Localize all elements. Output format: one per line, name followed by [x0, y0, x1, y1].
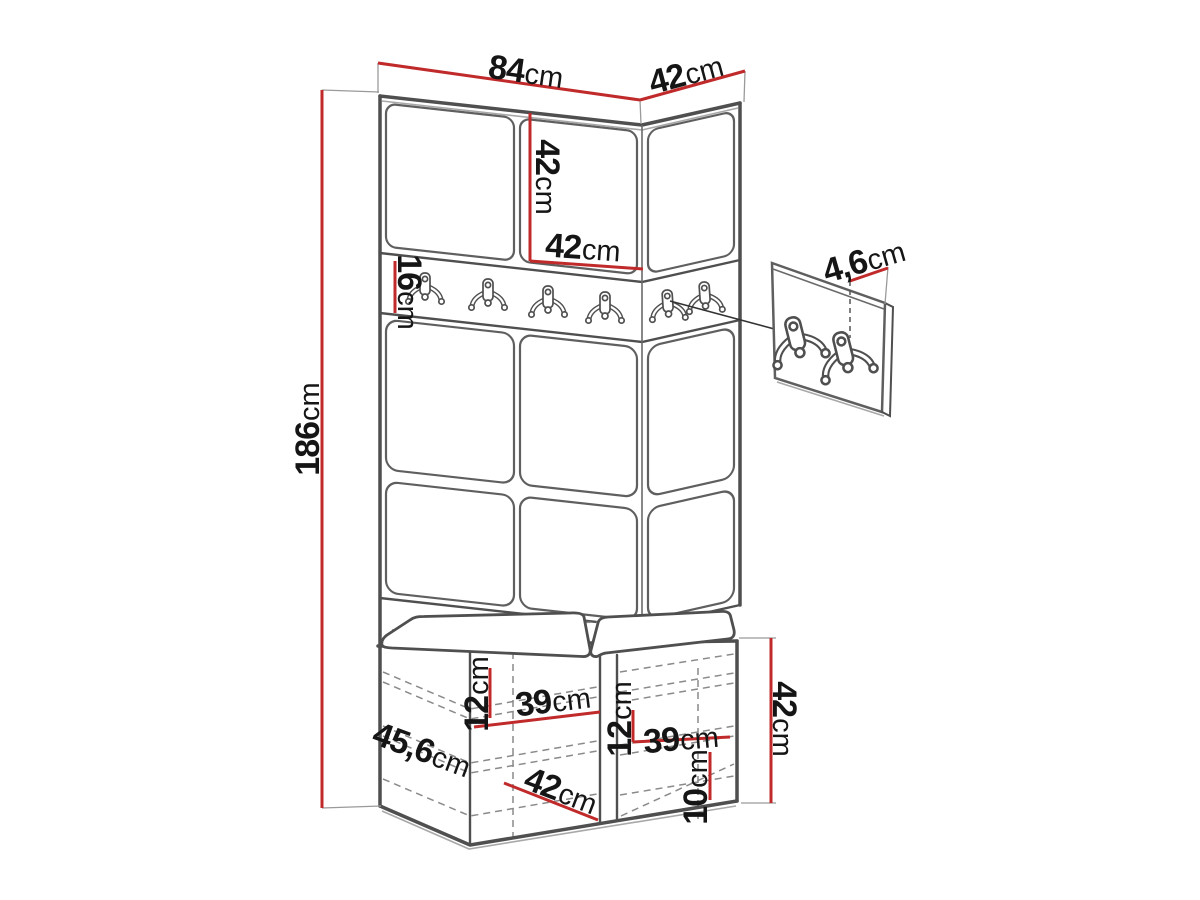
- upper-door-left: [386, 104, 514, 261]
- dim-label-upper-cabinet-width: 42cm: [544, 228, 622, 267]
- dim-label-bottom-shelf-gap: 10cm: [679, 749, 713, 825]
- seat-cushion-right: [591, 611, 734, 656]
- furniture-drawing: [0, 0, 1200, 900]
- dim-label-total-height: 186cm: [291, 382, 325, 475]
- coat-hook-icon: [648, 289, 688, 323]
- dim-label-hook-rail-height: 16cm: [392, 254, 426, 330]
- coat-hook-icon: [469, 279, 507, 310]
- dimension-diagram: 84cm 42cm 42cm 42cm 16cm 186cm 4,6cm 45,…: [0, 0, 1200, 900]
- front-face-panels: [386, 104, 637, 621]
- wall-panel-1: [386, 320, 514, 484]
- coat-hook-icon: [529, 286, 567, 317]
- dim-label-shelf-gap-right: 12cm: [603, 681, 637, 757]
- dim-label-upper-cabinet-height: 42cm: [530, 139, 564, 215]
- upper-door-side: [648, 111, 734, 273]
- wall-panel-3: [386, 482, 514, 607]
- wall-panel-2: [520, 334, 637, 497]
- wall-panel-4: [520, 496, 637, 620]
- dim-label-shelf-gap-left: 12cm: [460, 656, 494, 732]
- wall-panel-side-2: [648, 489, 734, 619]
- coat-hook-icon: [586, 292, 624, 323]
- coat-hook-icon: [685, 281, 725, 315]
- seat-cushion-left: [382, 613, 590, 657]
- wall-panel-side-1: [648, 327, 734, 496]
- right-face-panels: [648, 111, 734, 619]
- hook-rail: [406, 273, 725, 323]
- dim-label-bench-height: 42cm: [767, 681, 801, 757]
